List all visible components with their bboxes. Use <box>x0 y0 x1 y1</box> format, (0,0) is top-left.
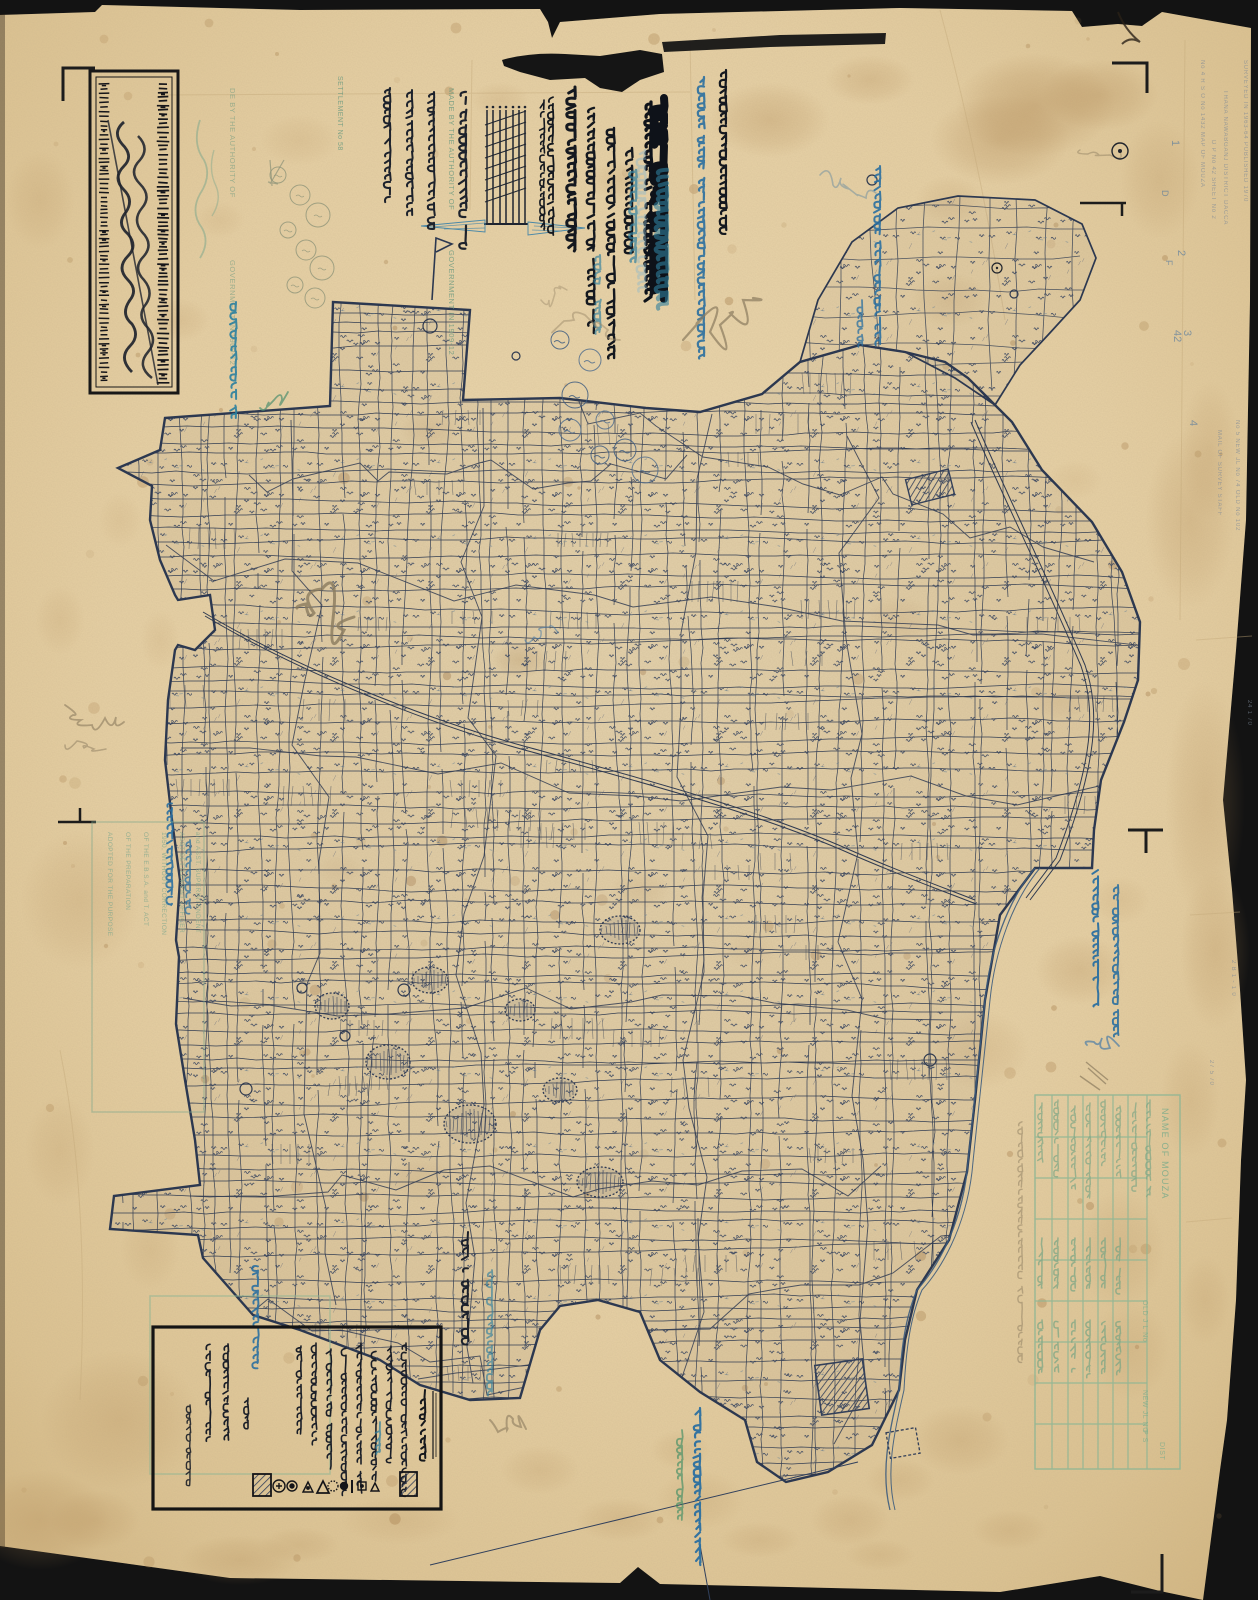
svg-text:NAME OF MOUZA: NAME OF MOUZA <box>1160 1108 1170 1200</box>
svg-text:F: F <box>1164 260 1174 266</box>
svg-text:2: 2 <box>1175 250 1187 256</box>
svg-text:SURVEYED IN 1963-64 PUBLISHED: SURVEYED IN 1963-64 PUBLISHED 1970 <box>1242 60 1248 202</box>
svg-text:DIST: DIST <box>1158 1442 1165 1460</box>
svg-text:THANA NAWABGANJ DISTRICT DACCA: THANA NAWABGANJ DISTRICT DACCA <box>1222 90 1228 225</box>
svg-text:1: 1 <box>1169 140 1181 146</box>
svg-text:D: D <box>1160 190 1170 197</box>
svg-text:NEW JL NO: NEW JL NO <box>1141 1390 1148 1433</box>
svg-text:No 4 R S O No 1432 MAP OF MOUZ: No 4 R S O No 1432 MAP OF MOUZA <box>1199 60 1205 188</box>
svg-text:No 5 NEW JL No 74 OLD No 102: No 5 NEW JL No 74 OLD No 102 <box>1234 420 1240 531</box>
svg-text:42: 42 <box>1171 330 1183 342</box>
svg-text:DE BY THE AUTHORITY OF: DE BY THE AUTHORITY OF <box>228 88 237 198</box>
svg-text:ASST SETTLEMENT OFFICER: ASST SETTLEMENT OFFICER <box>178 832 185 933</box>
svg-text:MAIL OF SURVEY STAFF: MAIL OF SURVEY STAFF <box>1216 430 1222 516</box>
svg-text:SETTLEMENT No 58: SETTLEMENT No 58 <box>336 76 343 151</box>
svg-text:24 1 70: 24 1 70 <box>1246 700 1252 726</box>
svg-text:27 5 70: 27 5 70 <box>1208 1060 1214 1086</box>
svg-text:1950, WITHOUT CORRECTION: 1950, WITHOUT CORRECTION <box>160 832 167 935</box>
svg-text:OLD J L No: OLD J L No <box>1141 1300 1148 1342</box>
svg-text:OF THE PREPARATION: OF THE PREPARATION <box>124 832 131 910</box>
svg-text:GOVERNMENT IN 1909-12: GOVERNMENT IN 1909-12 <box>447 250 456 355</box>
svg-text:D P No 42 SHEET No 2: D P No 42 SHEET No 2 <box>1210 140 1216 219</box>
svg-text:ADOPTED FOR THE PURPOSE: ADOPTED FOR THE PURPOSE <box>106 832 113 937</box>
svg-text:and ASST. SUPERINTENDENT: and ASST. SUPERINTENDENT <box>194 832 201 933</box>
svg-text:OF THE E.B.S.A. and T. ACT: OF THE E.B.S.A. and T. ACT <box>142 832 149 926</box>
svg-text:P S: P S <box>1141 1430 1148 1443</box>
svg-text:MADE BY THE AUTHORITY OF: MADE BY THE AUTHORITY OF <box>447 88 456 210</box>
svg-text:2 B 1 - 1 0: 2 B 1 - 1 0 <box>1230 960 1236 996</box>
svg-text:4: 4 <box>1187 420 1199 426</box>
